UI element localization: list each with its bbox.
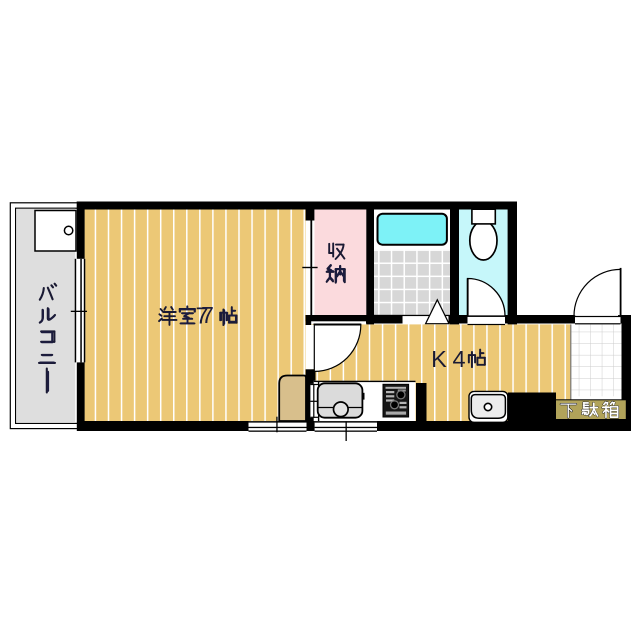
svg-text:K: K (431, 346, 447, 372)
svg-text:4: 4 (452, 346, 465, 372)
svg-text:7: 7 (201, 302, 214, 328)
